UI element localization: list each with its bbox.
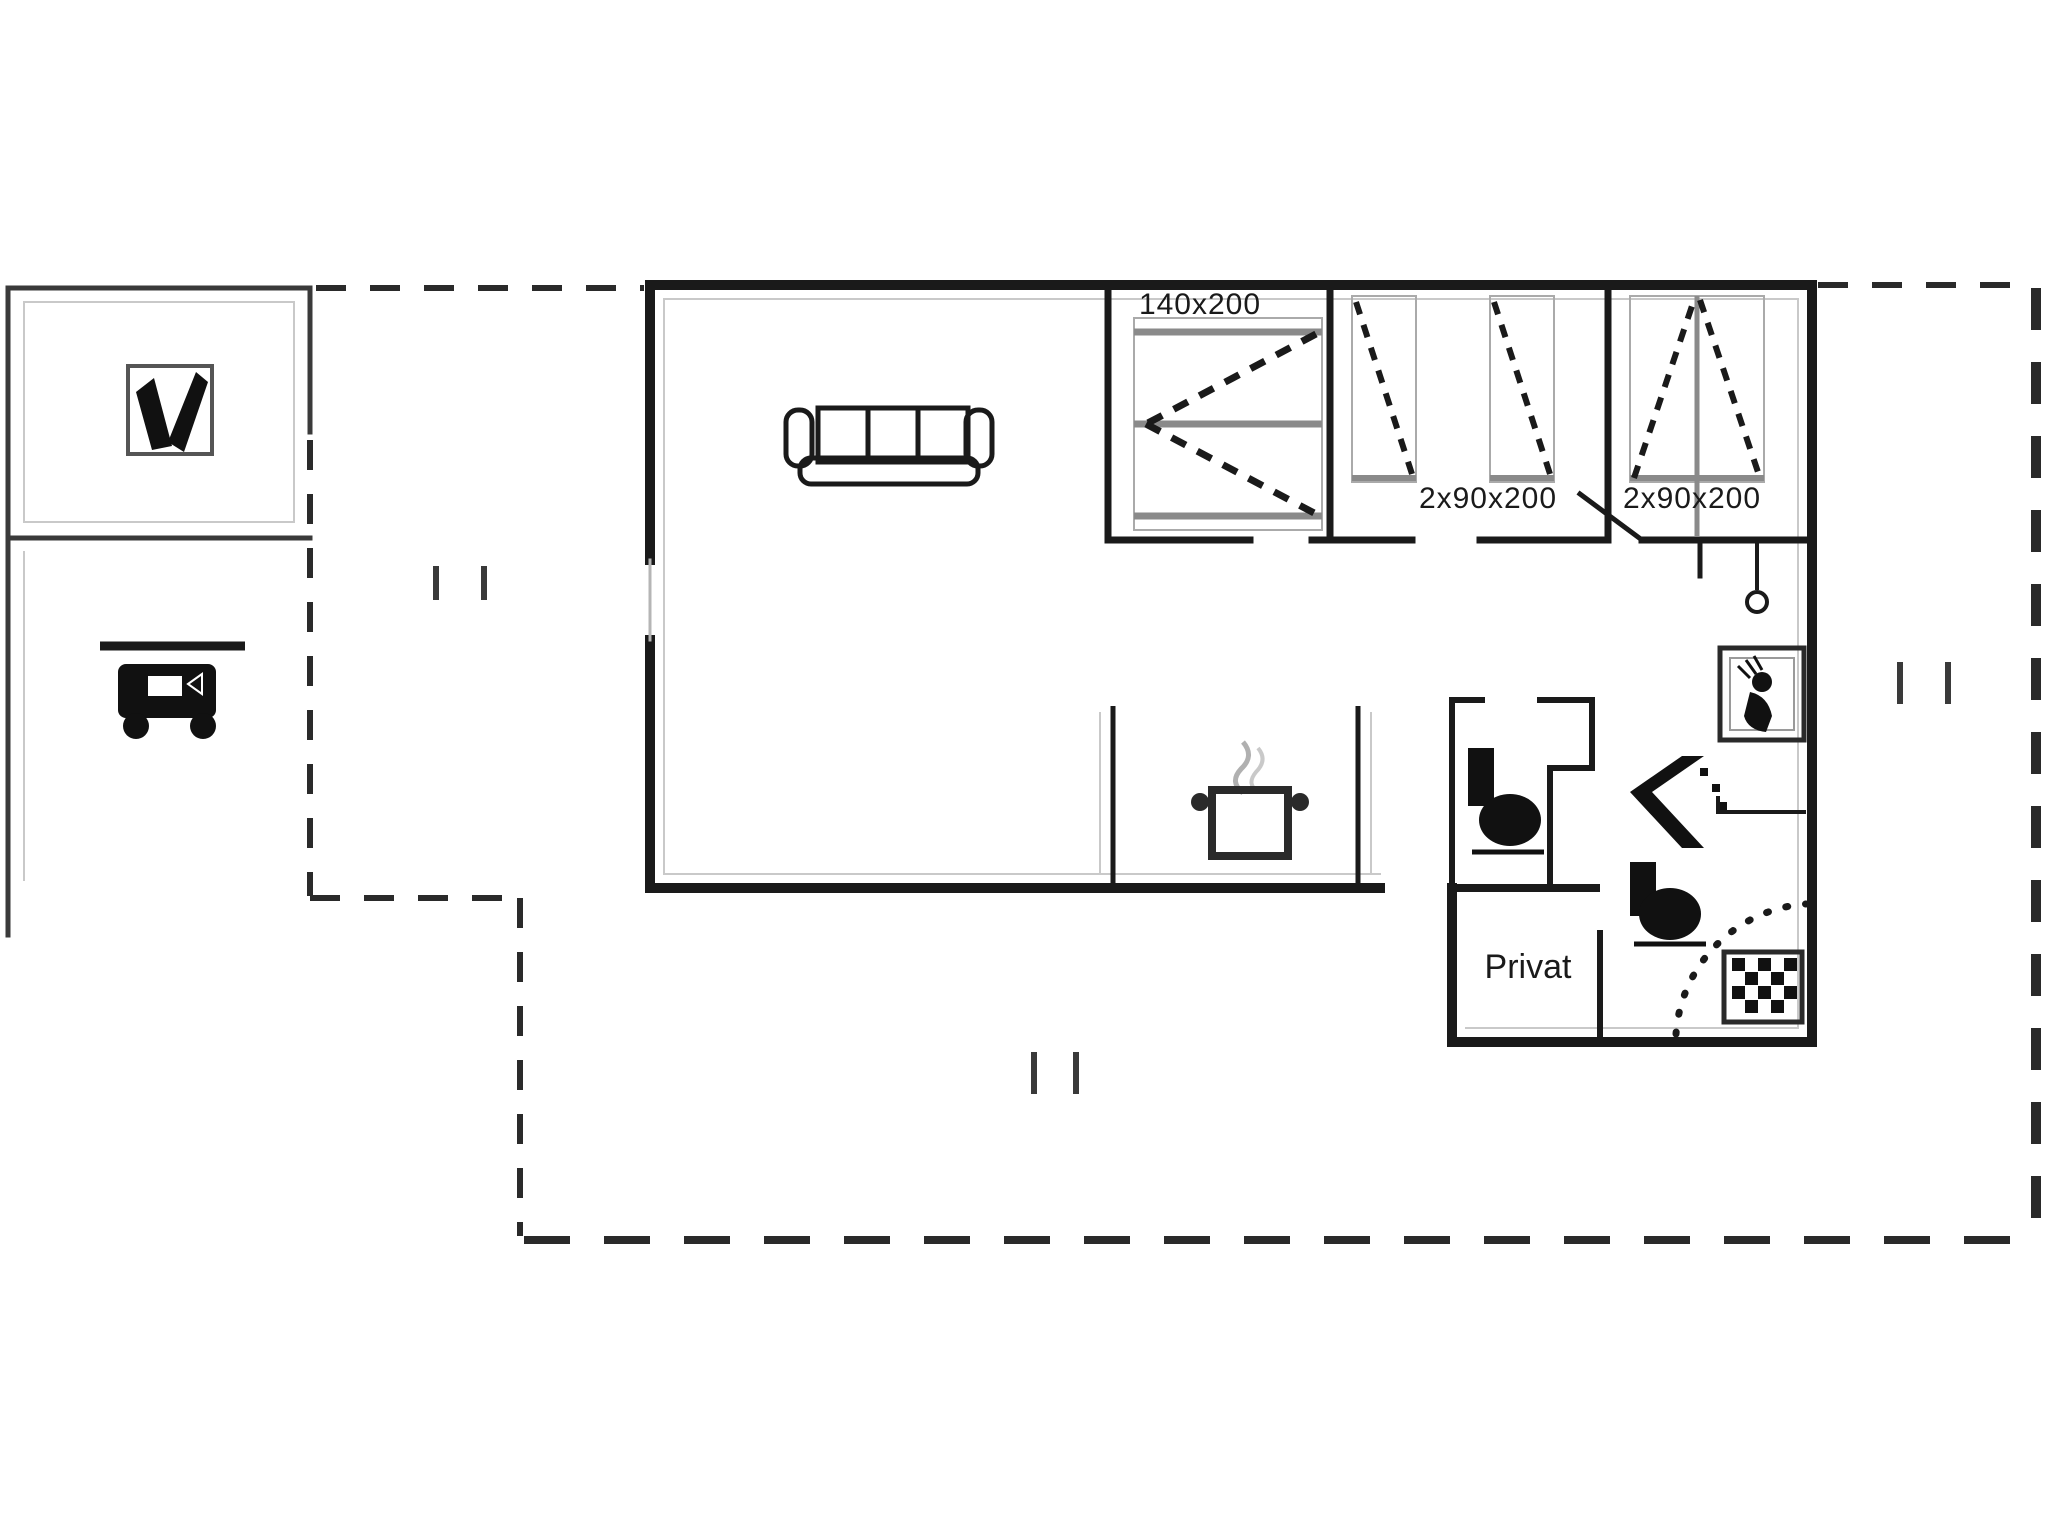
floorplan-svg: 140x200 2x90x200: [0, 0, 2048, 1536]
beds-size-label: 2x90x200: [1623, 482, 1761, 515]
floor-plan-page: 140x200 2x90x200: [0, 0, 2048, 1536]
bed-size-label: 140x200: [1139, 288, 1261, 321]
private-room-label: Privat: [1485, 948, 1572, 986]
beds-size-label: 2x90x200: [1419, 482, 1557, 515]
